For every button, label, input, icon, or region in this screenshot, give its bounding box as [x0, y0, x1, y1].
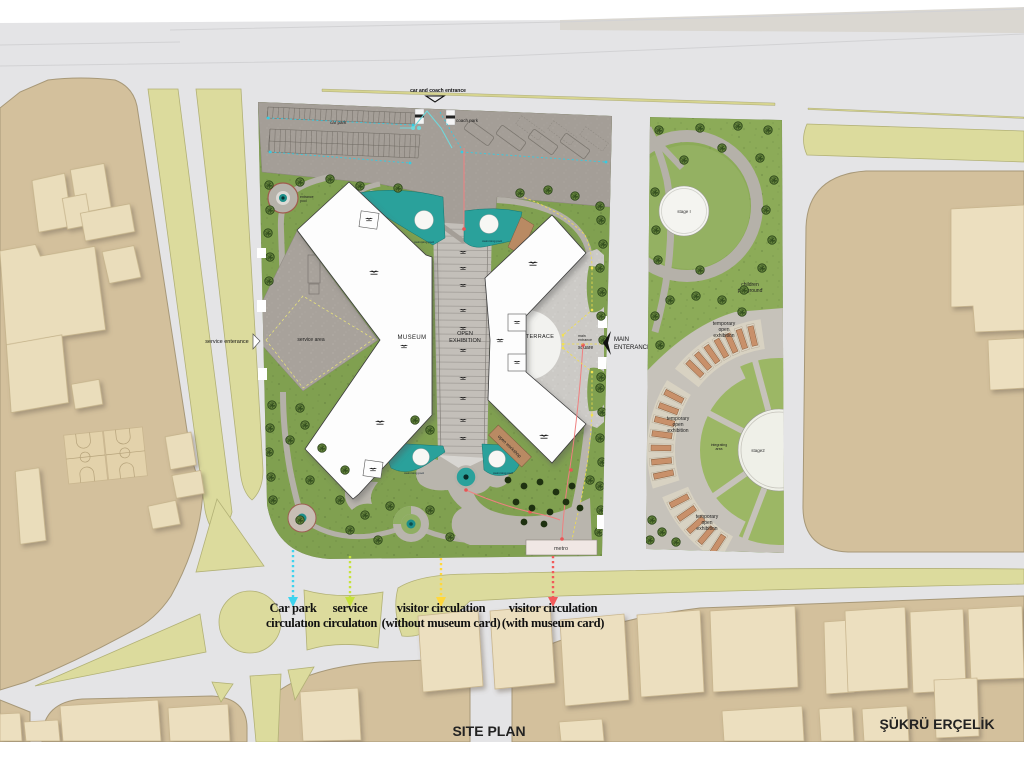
svg-text:area: area	[715, 447, 722, 451]
svg-text:OPEN: OPEN	[457, 331, 473, 337]
svg-text:stage I: stage I	[677, 209, 691, 214]
svg-text:ŞÜKRÜ ERÇELİK: ŞÜKRÜ ERÇELİK	[879, 716, 994, 732]
svg-text:swimming pool: swimming pool	[414, 240, 434, 244]
svg-text:service enterance: service enterance	[205, 339, 248, 345]
svg-text:visitor circulation: visitor circulation	[509, 601, 598, 615]
svg-text:exhibition: exhibition	[667, 428, 688, 434]
svg-text:stage2: stage2	[751, 448, 765, 453]
svg-text:metro: metro	[554, 546, 568, 552]
svg-text:MUSEUM: MUSEUM	[397, 335, 426, 341]
svg-text:car park: car park	[330, 120, 347, 125]
svg-text:service: service	[333, 601, 368, 615]
svg-text:pool: pool	[300, 199, 307, 203]
svg-text:Car park: Car park	[269, 601, 316, 615]
svg-text:swimming pool: swimming pool	[482, 239, 502, 243]
svg-text:visitor circulation: visitor circulation	[397, 601, 486, 615]
svg-text:coach park: coach park	[456, 118, 479, 123]
svg-text:entrance: entrance	[578, 338, 592, 342]
svg-text:service area: service area	[297, 337, 324, 343]
svg-text:MAIN: MAIN	[614, 337, 629, 343]
svg-text:ENTERANCE: ENTERANCE	[614, 345, 651, 351]
svg-text:SITE PLAN: SITE PLAN	[452, 723, 525, 739]
svg-text:car and coach entrance: car and coach entrance	[410, 88, 466, 94]
svg-text:TERRACE: TERRACE	[526, 334, 554, 340]
svg-text:circulatıon: circulatıon	[323, 616, 377, 630]
svg-text:circulatıon: circulatıon	[266, 616, 320, 630]
svg-text:swimming pool: swimming pool	[404, 471, 424, 475]
svg-text:(with museum card): (with museum card)	[502, 616, 604, 630]
svg-text:square: square	[578, 345, 594, 351]
svg-text:swimming pool: swimming pool	[493, 471, 513, 475]
svg-text:exhibition: exhibition	[713, 333, 734, 339]
svg-text:EXHIBITION: EXHIBITION	[449, 338, 481, 344]
svg-text:(without museum card): (without museum card)	[382, 616, 501, 630]
svg-text:exhibition: exhibition	[696, 526, 717, 532]
